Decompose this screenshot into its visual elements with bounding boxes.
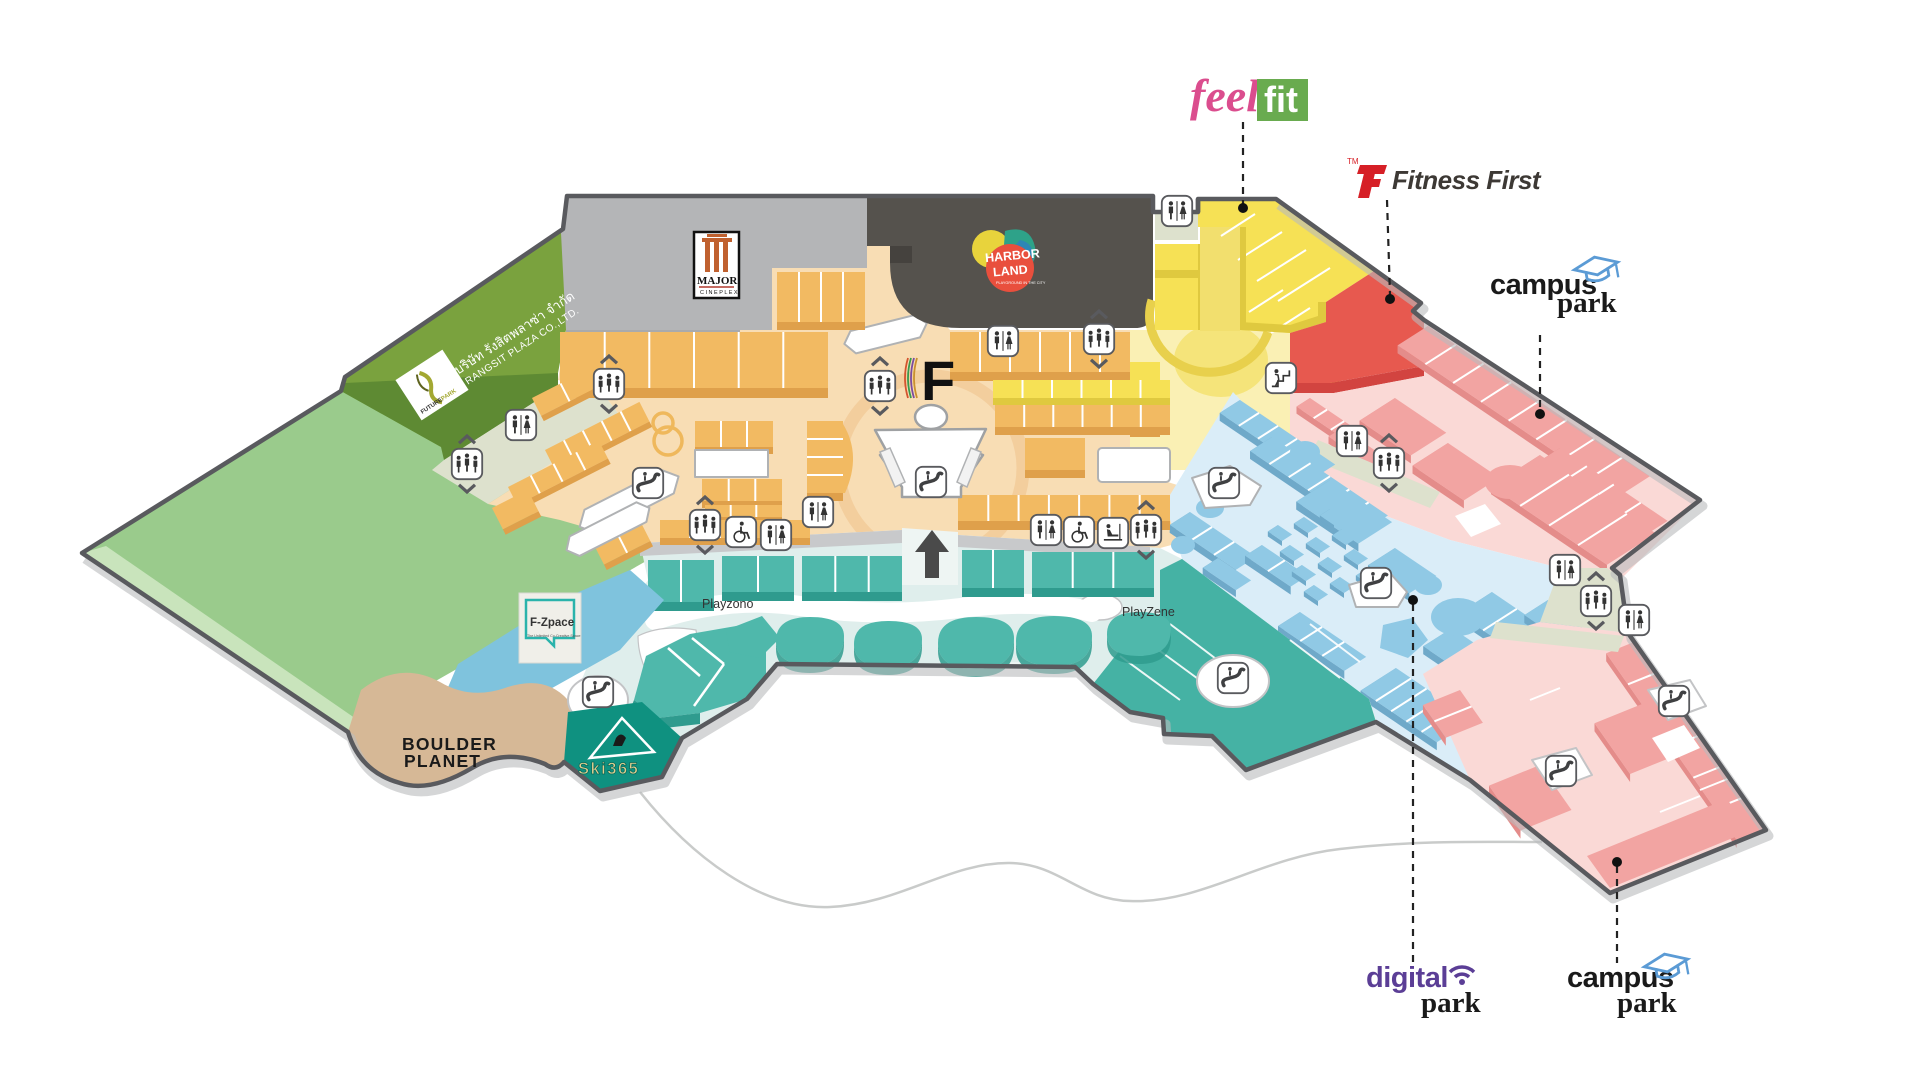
svg-text:MAJOR: MAJOR — [697, 275, 738, 287]
svg-text:PlayZene: PlayZene — [1122, 605, 1175, 619]
svg-text:The Unlimited Co-Creative Spac: The Unlimited Co-Creative Space — [527, 634, 581, 638]
svg-text:PLAYGROUND IN THE CITY: PLAYGROUND IN THE CITY — [996, 281, 1046, 285]
svg-text:park: park — [1617, 987, 1678, 1019]
svg-text:Playzono: Playzono — [702, 597, 753, 611]
svg-text:F: F — [921, 349, 955, 412]
svg-text:park: park — [1557, 287, 1618, 319]
svg-text:Fitness First: Fitness First — [1392, 165, 1542, 195]
svg-text:Ski365: Ski365 — [578, 760, 639, 778]
svg-text:F-Zpace: F-Zpace — [530, 617, 574, 629]
svg-text:fit: fit — [1264, 79, 1298, 120]
svg-text:feel: feel — [1190, 70, 1259, 121]
svg-text:C I N E P L E X: C I N E P L E X — [700, 290, 738, 296]
svg-text:park: park — [1421, 987, 1482, 1019]
svg-text:TM: TM — [1347, 157, 1359, 166]
svg-text:PLANET: PLANET — [404, 751, 481, 771]
